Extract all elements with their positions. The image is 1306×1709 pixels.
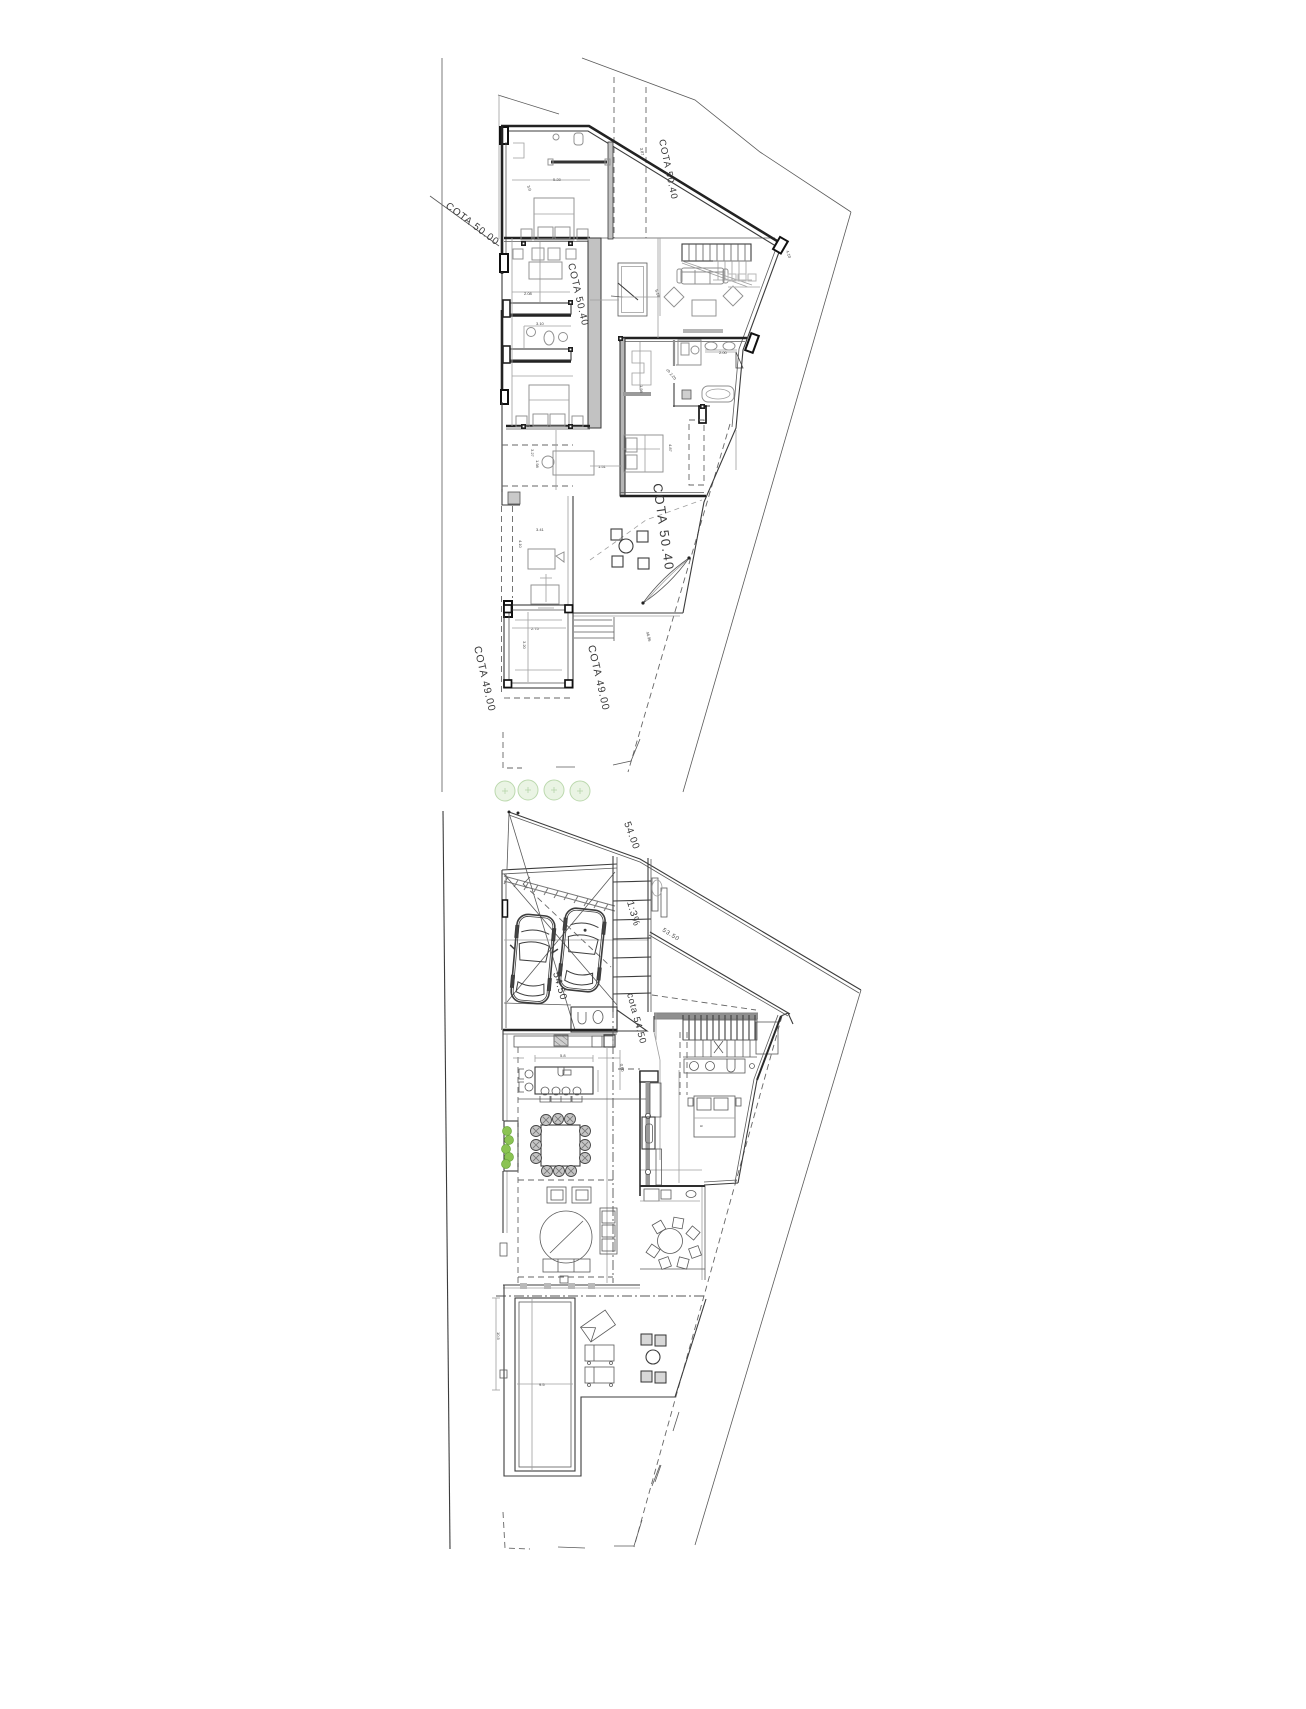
svg-text:1.98: 1.98 [535, 460, 540, 469]
svg-text:4.10: 4.10 [518, 540, 523, 549]
svg-text:3.10: 3.10 [536, 321, 545, 326]
svg-text:3.20: 3.20 [522, 641, 527, 650]
svg-text:2.00: 2.00 [719, 350, 728, 355]
svg-text:2.75: 2.75 [531, 626, 540, 631]
svg-text:9.5: 9.5 [539, 1382, 545, 1387]
svg-text:1.51: 1.51 [598, 464, 607, 469]
svg-text:1.98: 1.98 [639, 385, 644, 394]
svg-text:5.28: 5.28 [553, 177, 562, 182]
svg-text:5.8: 5.8 [560, 1053, 566, 1058]
svg-text:4.87: 4.87 [668, 444, 673, 453]
svg-text:3.41: 3.41 [536, 527, 545, 532]
svg-text:3.27: 3.27 [530, 449, 535, 458]
svg-text:10.5: 10.5 [496, 1332, 501, 1341]
